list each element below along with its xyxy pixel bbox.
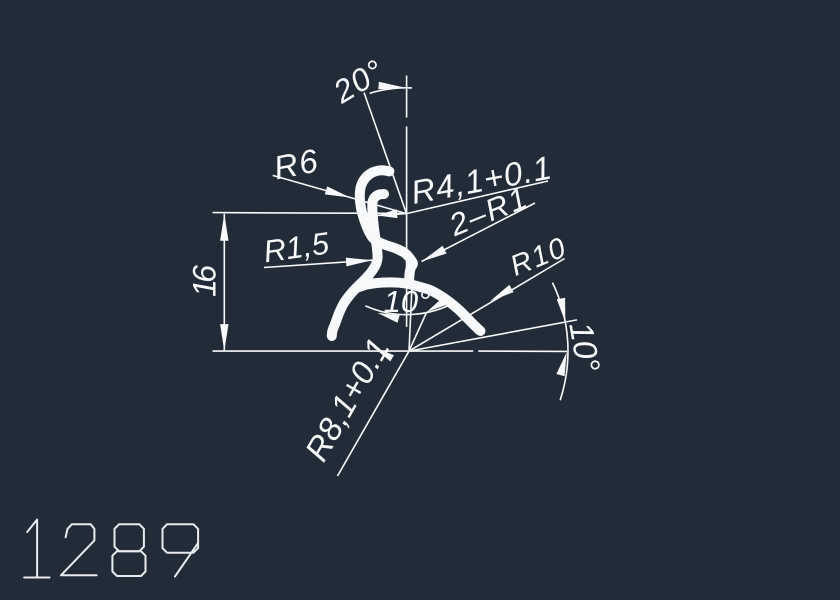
svg-text:16: 16: [187, 265, 223, 297]
svg-text:10°: 10°: [384, 284, 431, 319]
